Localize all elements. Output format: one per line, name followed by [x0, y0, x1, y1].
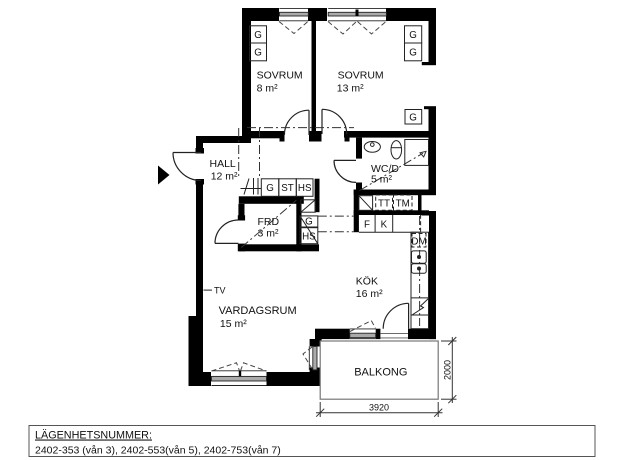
svg-text:5 m²: 5 m² — [371, 174, 393, 186]
svg-text:VARDAGSRUM: VARDAGSRUM — [219, 305, 297, 317]
svg-text:FRD: FRD — [258, 216, 280, 228]
svg-text:G: G — [254, 48, 262, 59]
svg-text:TT: TT — [378, 199, 390, 210]
svg-text:HS: HS — [298, 183, 312, 194]
svg-text:SOVRUM: SOVRUM — [338, 70, 384, 82]
svg-text:3 m²: 3 m² — [258, 228, 280, 240]
svg-text:8 m²: 8 m² — [257, 83, 279, 95]
svg-text:G: G — [254, 30, 262, 41]
svg-text:DM: DM — [411, 237, 426, 248]
svg-text:TM: TM — [396, 199, 410, 210]
svg-text:G: G — [409, 30, 417, 41]
svg-text:3920: 3920 — [369, 403, 389, 413]
svg-text:LÄGENHETSNUMMER:: LÄGENHETSNUMMER: — [35, 430, 152, 442]
svg-text:TV: TV — [214, 286, 226, 296]
svg-text:KÖK: KÖK — [356, 276, 378, 288]
svg-text:2402-353 (vån 3), 2402-553(vån: 2402-353 (vån 3), 2402-553(vån 5), 2402-… — [35, 445, 281, 457]
svg-text:16 m²: 16 m² — [356, 288, 383, 300]
svg-text:G: G — [305, 217, 313, 228]
svg-text:13 m²: 13 m² — [337, 83, 364, 95]
svg-text:12 m²: 12 m² — [211, 171, 238, 183]
svg-text:HS: HS — [302, 232, 316, 243]
svg-text:15 m²: 15 m² — [220, 318, 247, 330]
svg-text:F: F — [364, 220, 370, 231]
svg-text:HALL: HALL — [210, 158, 236, 170]
svg-text:G: G — [409, 113, 417, 124]
svg-text:BALKONG: BALKONG — [354, 367, 407, 379]
svg-text:K: K — [381, 220, 388, 231]
svg-text:2000: 2000 — [443, 360, 453, 380]
svg-text:SOVRUM: SOVRUM — [257, 70, 303, 82]
svg-text:G: G — [266, 183, 274, 194]
svg-text:G: G — [409, 48, 417, 59]
svg-text:ST: ST — [281, 183, 294, 194]
